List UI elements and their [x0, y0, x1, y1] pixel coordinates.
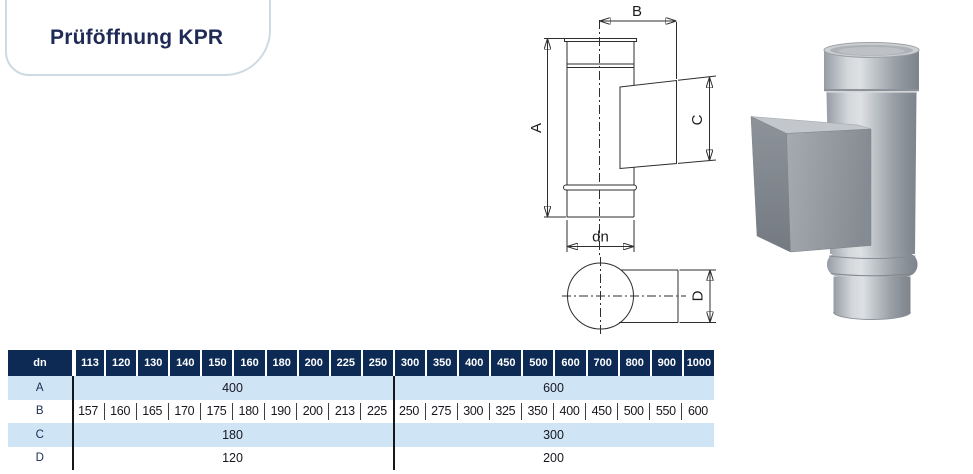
row-label: B: [8, 400, 72, 424]
value-cell: 225: [361, 400, 393, 424]
value-cell: 350: [521, 400, 553, 424]
column-header: 450: [491, 350, 521, 376]
row-label: C: [8, 423, 72, 447]
column-header: 900: [652, 350, 682, 376]
value-cell: 157: [72, 400, 104, 424]
table-corner-dn: dn: [8, 350, 72, 376]
column-header: 300: [395, 350, 425, 376]
table-body: A400600B15716016517017518019020021322525…: [8, 376, 714, 470]
page-title: Prüföffnung KPR: [50, 26, 223, 50]
pipe-bottom-render: [827, 253, 918, 320]
column-header: 500: [523, 350, 553, 376]
merged-value-cell: 400: [72, 376, 393, 400]
column-header: 180: [267, 350, 297, 376]
table-row-D: D120200: [8, 447, 714, 471]
row-label: D: [8, 447, 72, 471]
column-header: 700: [588, 350, 618, 376]
column-header: 113: [76, 350, 104, 376]
column-header: 800: [620, 350, 650, 376]
column-header: 350: [427, 350, 457, 376]
value-cell: 325: [489, 400, 521, 424]
merged-value-cell: 120: [72, 447, 393, 471]
value-cell: 213: [329, 400, 361, 424]
column-header: 150: [202, 350, 232, 376]
bottom-view: D: [562, 257, 716, 336]
value-cell: 450: [586, 400, 618, 424]
row-label: A: [8, 376, 72, 400]
value-cell: 190: [265, 400, 297, 424]
column-header: 200: [299, 350, 329, 376]
technical-drawing: B A C dn: [500, 0, 740, 340]
dim-label-d: D: [690, 290, 707, 301]
label-column-divider: [72, 376, 74, 470]
value-cell: 600: [682, 400, 714, 424]
column-header: 400: [459, 350, 489, 376]
value-cell: 180: [232, 400, 264, 424]
merged-value-cell: 180: [72, 423, 393, 447]
merged-value-cell: 300: [393, 423, 714, 447]
column-header: 130: [138, 350, 168, 376]
table-header-row: dn11312013014015016018020022525030035040…: [8, 350, 714, 376]
value-cell: 165: [136, 400, 168, 424]
merged-value-cell: 600: [393, 376, 714, 400]
table-row-A: A400600: [8, 376, 714, 400]
spec-table: dn11312013014015016018020022525030035040…: [8, 350, 714, 470]
value-cell: 160: [104, 400, 136, 424]
inspection-box-render: [751, 117, 871, 253]
column-header: 600: [555, 350, 585, 376]
dim-label-a: A: [528, 123, 545, 133]
value-cell: 500: [618, 400, 650, 424]
front-view: B A C dn: [528, 3, 716, 256]
column-header: 160: [234, 350, 264, 376]
value-cell: 250: [393, 400, 425, 424]
dim-label-dn: dn: [592, 229, 609, 246]
value-cell: 400: [553, 400, 585, 424]
value-cell: 175: [200, 400, 232, 424]
table-row-B: B157160165170175180190200213225250275300…: [8, 400, 714, 424]
column-header: 250: [363, 350, 393, 376]
value-cell: 275: [425, 400, 457, 424]
column-header: 1000: [684, 350, 714, 376]
dim-label-b: B: [632, 3, 642, 20]
value-cell: 170: [168, 400, 200, 424]
column-header: 225: [331, 350, 361, 376]
value-cell: 200: [297, 400, 329, 424]
dim-label-c: C: [689, 114, 706, 125]
merged-value-cell: 200: [393, 447, 714, 471]
table-row-C: C180300: [8, 423, 714, 447]
product-image: [745, 25, 973, 325]
column-header: 120: [106, 350, 136, 376]
value-cell: 550: [650, 400, 682, 424]
value-cell: 300: [457, 400, 489, 424]
page: Prüföffnung KPR B: [0, 0, 973, 474]
group-divider: [393, 376, 395, 470]
column-header: 140: [170, 350, 200, 376]
